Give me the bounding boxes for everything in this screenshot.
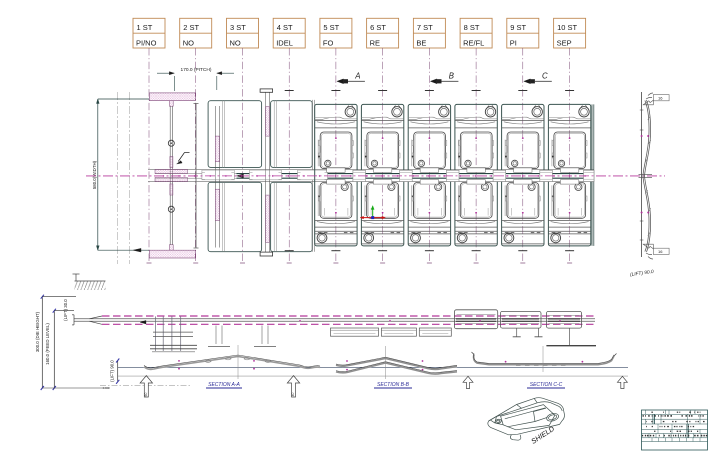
svg-text:PI: PI bbox=[510, 39, 517, 48]
svg-text:1 ST: 1 ST bbox=[137, 23, 153, 32]
svg-text:9 ST: 9 ST bbox=[510, 23, 526, 32]
svg-text:SEP: SEP bbox=[557, 39, 572, 48]
svg-text:170.0 (PITCH): 170.0 (PITCH) bbox=[181, 67, 212, 73]
svg-text:(LIFT) 30.0: (LIFT) 30.0 bbox=[63, 299, 68, 321]
svg-text:5 ST: 5 ST bbox=[323, 23, 339, 32]
svg-text:16: 16 bbox=[658, 95, 663, 100]
svg-text:60: 60 bbox=[144, 393, 148, 397]
svg-text:6400: 6400 bbox=[103, 386, 110, 390]
svg-text:C: C bbox=[542, 71, 548, 80]
svg-text:10 ST: 10 ST bbox=[557, 23, 577, 32]
svg-text:RE: RE bbox=[370, 39, 380, 48]
svg-text:SECTION B-B: SECTION B-B bbox=[377, 382, 410, 388]
svg-text:NO: NO bbox=[230, 39, 241, 48]
svg-text:A: A bbox=[354, 71, 360, 80]
svg-text:RE/FL: RE/FL bbox=[463, 39, 484, 48]
svg-text:4 ST: 4 ST bbox=[277, 23, 293, 32]
svg-text:3 ST: 3 ST bbox=[230, 23, 246, 32]
svg-text:NO: NO bbox=[183, 39, 194, 48]
svg-text:8 ST: 8 ST bbox=[464, 23, 480, 32]
svg-text:160.0 (FEED LEVEL): 160.0 (FEED LEVEL) bbox=[45, 323, 50, 365]
svg-text:6 ST: 6 ST bbox=[370, 23, 386, 32]
svg-text:(LIFT) 90.0: (LIFT) 90.0 bbox=[110, 360, 115, 382]
svg-text:IDEL: IDEL bbox=[276, 39, 293, 48]
svg-text:BE: BE bbox=[416, 39, 426, 48]
svg-text:16: 16 bbox=[658, 249, 663, 254]
svg-text:B: B bbox=[449, 71, 454, 80]
svg-text:FO: FO bbox=[323, 39, 334, 48]
svg-text:2 ST: 2 ST bbox=[183, 23, 199, 32]
svg-text:40: 40 bbox=[291, 393, 295, 397]
svg-text:SECTION C-C: SECTION C-C bbox=[530, 382, 563, 388]
svg-text:300.0 (DIE HEIGHT): 300.0 (DIE HEIGHT) bbox=[35, 311, 40, 352]
svg-text:7 ST: 7 ST bbox=[417, 23, 433, 32]
svg-text:580.0(WIDTH): 580.0(WIDTH) bbox=[92, 160, 97, 189]
svg-text:SECTION A-A: SECTION A-A bbox=[208, 382, 240, 388]
svg-text:PI/NO: PI/NO bbox=[136, 39, 157, 48]
